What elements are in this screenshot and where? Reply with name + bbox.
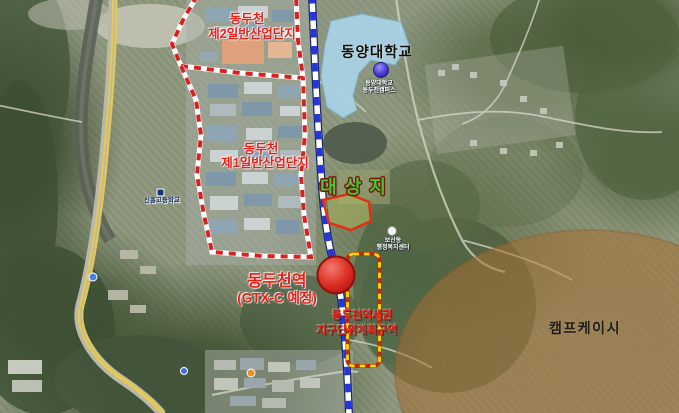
station-label-line2: (GTX-C 예정): [237, 291, 317, 305]
campus-marker-label-line2: 동두천캠퍼스: [362, 88, 395, 94]
satellite-map[interactable]: 동두천 제2일반산업단지 동두천 제1일반산업단지 동양대학교 대상지 동두천역…: [0, 0, 679, 413]
map-overlay-graphics: [0, 0, 679, 413]
community-center-label-line1: 보산동: [385, 238, 402, 244]
university-label: 동양대학교: [341, 46, 413, 61]
complex2-label-line2: 제2일반산업단지: [208, 28, 295, 41]
complex1-label-line1: 동두천: [244, 143, 279, 156]
station-marker[interactable]: [318, 257, 355, 294]
university-campus-area[interactable]: [321, 14, 409, 118]
district-label-line2: 지구단위계획구역: [317, 326, 398, 337]
poi-dot-blue-1[interactable]: [181, 368, 188, 375]
pond: [323, 122, 387, 164]
poi-dot-orange[interactable]: [247, 369, 255, 377]
school-marker-icon[interactable]: [157, 189, 164, 196]
station-label-line1: 동두천역: [248, 274, 307, 290]
school-label: 신흥고등학교: [144, 198, 180, 205]
target-site-label: 대상지: [320, 178, 394, 196]
target-site-polygon[interactable]: [323, 194, 371, 230]
district-label-line1: 동두천역세권: [332, 311, 393, 322]
community-center-label-line2: 행정복지센터: [376, 245, 409, 251]
community-center-marker-icon[interactable]: [388, 227, 397, 236]
poi-dot-blue-2[interactable]: [89, 273, 97, 281]
campus-marker[interactable]: [374, 63, 389, 78]
complex2-label-line1: 동두천: [230, 13, 265, 26]
campus-marker-label-line1: 동양대학교: [365, 81, 393, 87]
camp-casey-label: 캠프케이시: [549, 321, 621, 335]
complex1-label-line2: 제1일반산업단지: [221, 157, 308, 170]
